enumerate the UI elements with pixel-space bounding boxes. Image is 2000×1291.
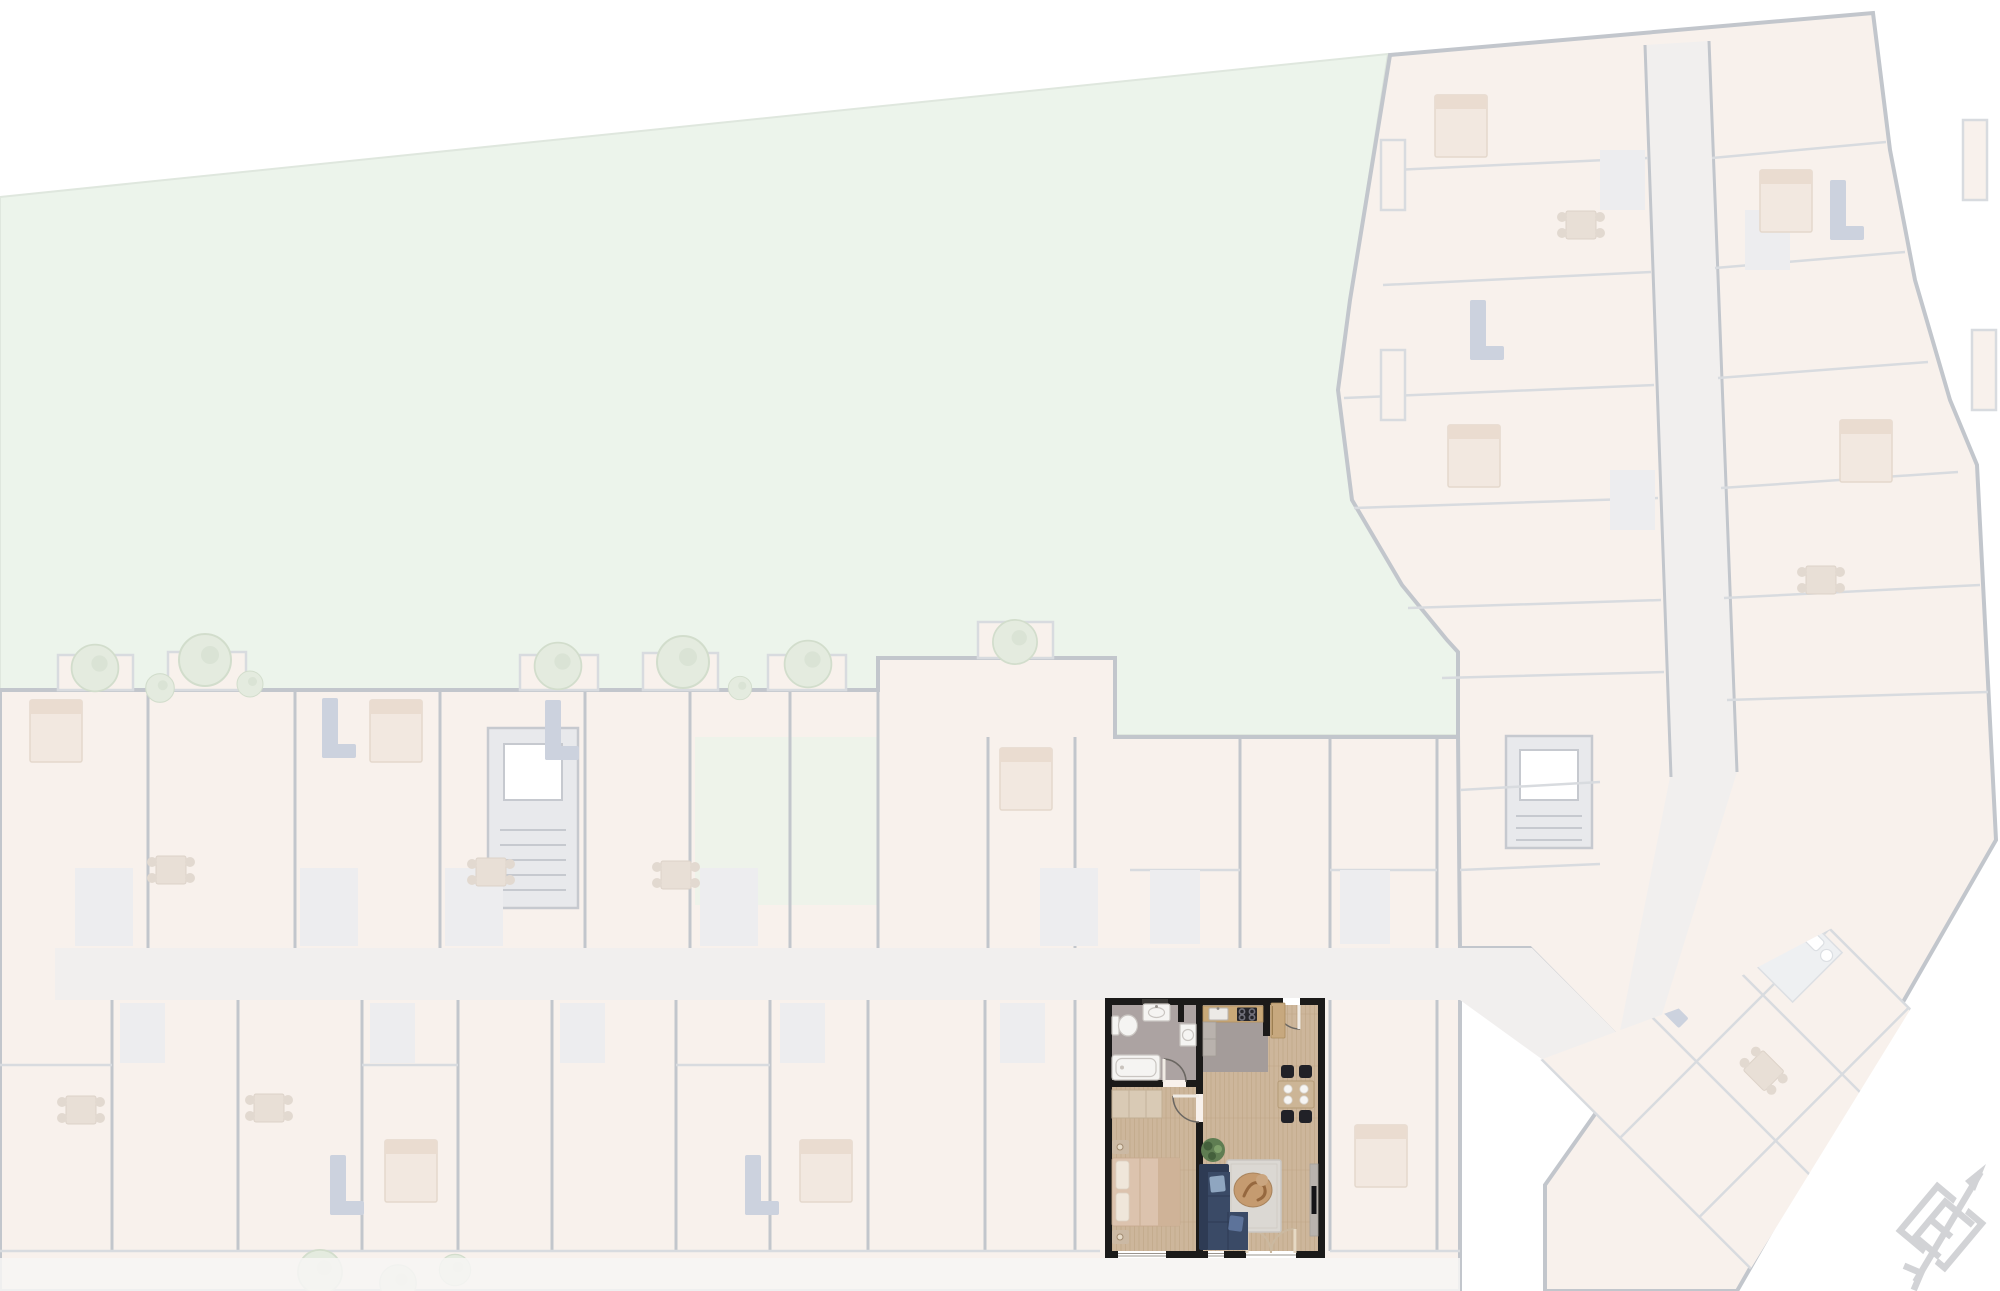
- wall-bath-bottom-a: [1112, 1080, 1163, 1087]
- double-bed: [1112, 1158, 1180, 1226]
- lamp: [1117, 1234, 1123, 1240]
- wall-bottom-d: [1296, 1251, 1325, 1258]
- wall-left: [1105, 998, 1112, 1258]
- east-stair-shaft: [1506, 736, 1592, 848]
- wall-bottom-a: [1105, 1251, 1118, 1258]
- highlighted-apartment[interactable]: [1105, 998, 1325, 1258]
- wall-bottom-c: [1224, 1251, 1246, 1258]
- wall-top-b: [1300, 998, 1325, 1005]
- furniture-hint: [800, 1140, 852, 1202]
- toilet: [1112, 1015, 1138, 1036]
- dining-chair: [1299, 1110, 1312, 1123]
- entry-opening: [1283, 998, 1300, 1005]
- pet-on-rug: [1234, 1173, 1272, 1207]
- cushion: [1228, 1215, 1244, 1232]
- wall-kitchen-stub: [1263, 1005, 1270, 1036]
- site-floorplan: [0, 0, 2000, 1291]
- furniture-hint: [1840, 420, 1892, 482]
- floorplan-page: [0, 0, 2000, 1291]
- faucet: [1217, 1007, 1220, 1010]
- bedroom-window: [1118, 1251, 1166, 1258]
- plate: [1300, 1085, 1308, 1093]
- tv: [1312, 1186, 1317, 1214]
- fridge: [1271, 1003, 1285, 1038]
- dining-chair: [1281, 1065, 1294, 1078]
- plate: [1284, 1096, 1292, 1104]
- furniture-hint: [1760, 170, 1812, 232]
- furniture-hint: [1000, 748, 1052, 810]
- wall-bath-stub: [1178, 1005, 1184, 1022]
- lamp: [1117, 1144, 1123, 1150]
- plate: [1284, 1085, 1292, 1093]
- furniture-hint: [1435, 95, 1487, 157]
- furniture-hint: [370, 700, 422, 762]
- wall-right: [1318, 998, 1325, 1258]
- small-window: [1208, 1251, 1224, 1258]
- plate: [1300, 1096, 1308, 1104]
- furniture-hint: [1448, 425, 1500, 487]
- cushion: [1209, 1175, 1226, 1192]
- dining-table: [1278, 1081, 1314, 1108]
- wall-top-a: [1105, 998, 1283, 1005]
- dining-chair: [1299, 1065, 1312, 1078]
- bathroom-sink: [1143, 1004, 1170, 1021]
- wall-bath-bottom-b: [1186, 1080, 1196, 1087]
- floor-plant: [1201, 1138, 1225, 1162]
- main-corridor: [55, 948, 1460, 1000]
- bathtub: [1112, 1055, 1160, 1080]
- wall-bottom-b: [1166, 1251, 1208, 1258]
- wall-bed-living-upper: [1196, 1005, 1203, 1094]
- washing-machine: [1180, 1024, 1196, 1046]
- mirror: [1142, 999, 1168, 1004]
- furniture-hint: [30, 700, 82, 762]
- elevator-box: [1520, 750, 1578, 800]
- terrace-strip: [0, 1258, 1460, 1291]
- wardrobe: [1112, 1090, 1162, 1118]
- furniture-hint: [385, 1140, 437, 1202]
- dining-chair: [1281, 1110, 1294, 1123]
- furniture-hint: [1355, 1125, 1407, 1187]
